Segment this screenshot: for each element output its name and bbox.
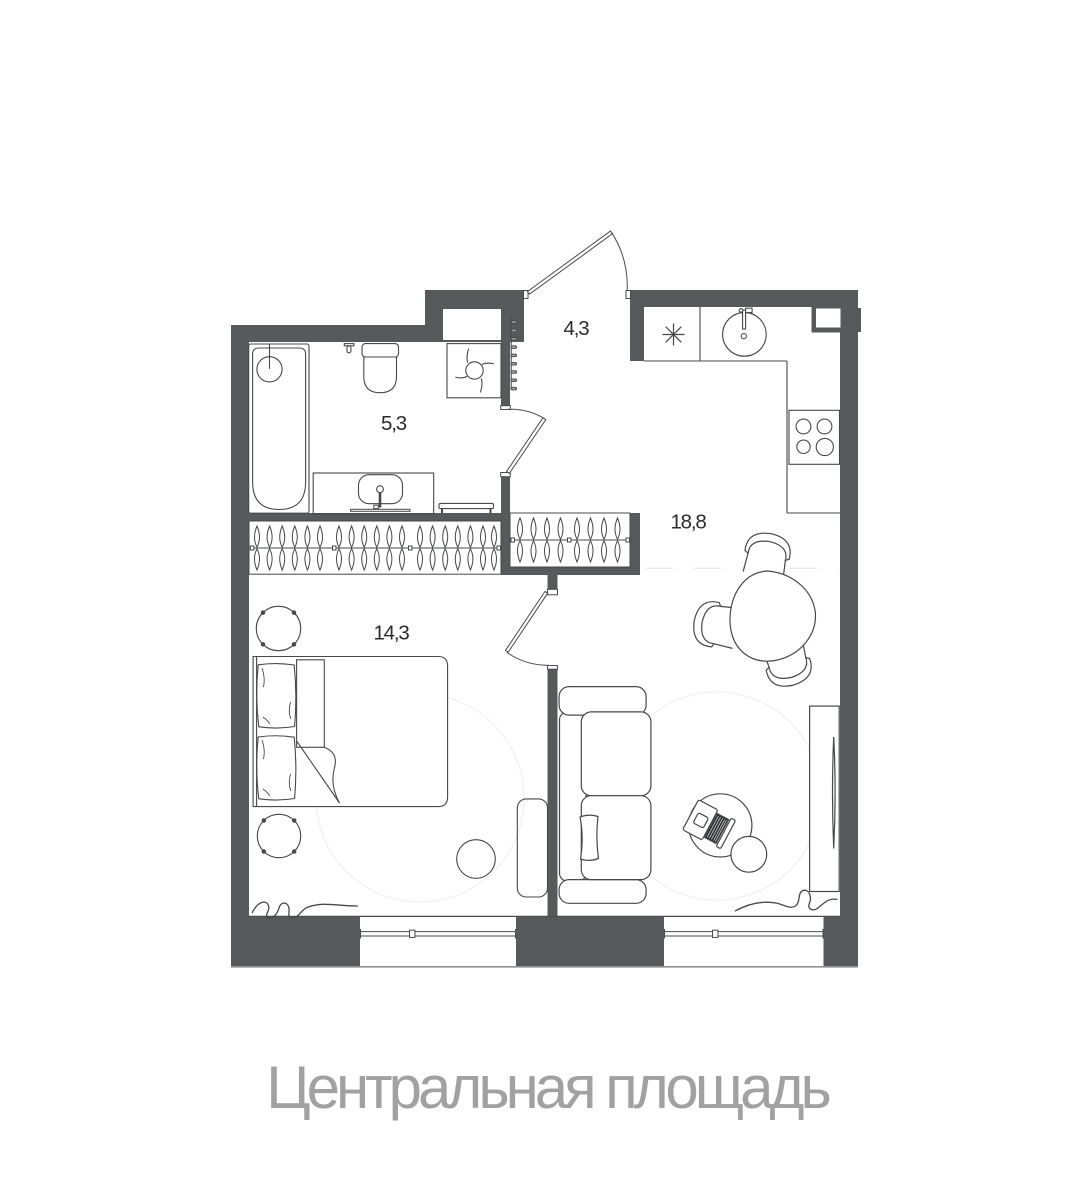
svg-text:5,3: 5,3 (381, 412, 407, 435)
svg-text:4,3: 4,3 (564, 317, 590, 340)
svg-text:Центральная площадь: Центральная площадь (266, 1054, 829, 1121)
svg-text:14,3: 14,3 (373, 622, 409, 645)
svg-text:18,8: 18,8 (670, 511, 706, 534)
